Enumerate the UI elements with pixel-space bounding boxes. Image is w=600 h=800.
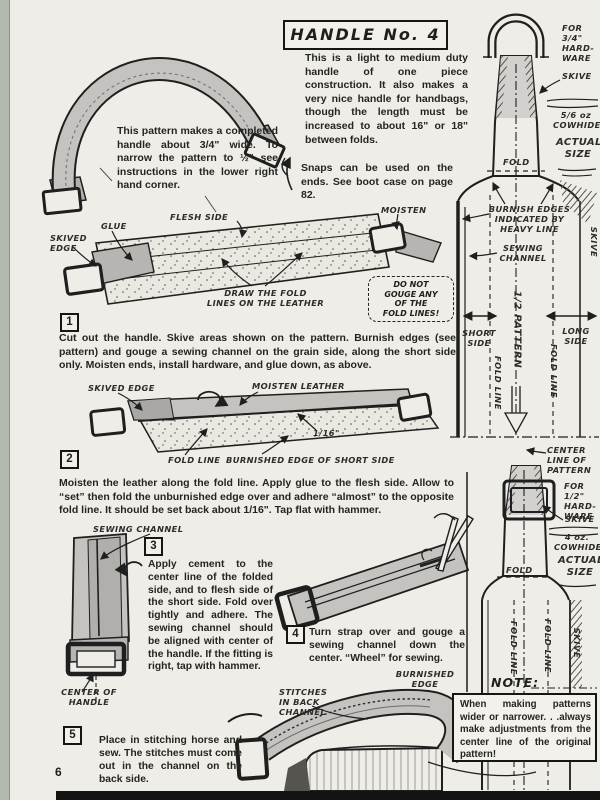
note-label: NOTE:: [491, 675, 539, 690]
label-stitches-back-channel: STITCHES IN BACK CHANNEL: [279, 687, 339, 717]
label-hardware-top: FOR 3/4" HARD- WARE: [562, 23, 600, 63]
label-fold-line-right-top: FOLD LINE: [549, 321, 559, 421]
label-fold-line-left-top: FOLD LINE: [493, 333, 503, 433]
label-skive-edge-top: SKIVE: [589, 192, 599, 292]
label-skived-edge-2: SKIVED EDGE: [88, 383, 155, 393]
label-burnished-edge-4: BURNISHED EDGE: [394, 669, 456, 689]
label-fold-top: FOLD: [503, 157, 530, 167]
note-text: When making patterns wider or narrower. …: [460, 699, 591, 762]
step-4-marker: 4: [286, 625, 305, 644]
step-5-marker: 5: [63, 726, 82, 745]
label-skive-bottom: SKIVE: [565, 514, 595, 524]
label-leather-top: 5/6 oz COWHIDE: [553, 110, 599, 130]
label-center-of-handle: CENTER OF HANDLE: [50, 687, 128, 707]
label-long-side: LONG SIDE: [558, 326, 594, 346]
label-moisten: MOISTEN: [381, 205, 426, 215]
label-flesh-side: FLESH SIDE: [170, 212, 228, 222]
warning-box: DO NOT GOUGE ANY OF THE FOLD LINES!: [368, 276, 454, 322]
page-title: HANDLE No. 4: [290, 25, 440, 44]
label-burnished-edge-short: BURNISHED EDGE OF SHORT SIDE: [226, 455, 395, 465]
pattern-top-drawing: [450, 18, 599, 453]
step-4-text: Turn strap over and gouge a sewing chann…: [309, 626, 465, 665]
label-short-side: SHORT SIDE: [461, 328, 497, 348]
label-actual-size-top: ACTUAL SIZE: [556, 137, 600, 161]
scan-edge-bottom: [56, 791, 600, 800]
step-1-text: Cut out the handle. Skive areas shown on…: [59, 332, 456, 373]
label-half-pattern: 1/2 PATTERN: [512, 280, 523, 380]
handle-width-note: This pattern makes a completed handle ab…: [117, 125, 278, 193]
step-3-marker: 3: [144, 537, 163, 556]
label-fold-bottom: FOLD: [506, 565, 533, 575]
step-2-text: Moisten the leather along the fold line.…: [59, 477, 454, 518]
label-center-line: CENTER LINE OF PATTERN: [547, 445, 591, 475]
step-3-text: Apply cement to the center line of the f…: [148, 559, 273, 674]
label-skive-top: SKIVE: [562, 71, 592, 81]
step-2-marker: 2: [60, 450, 79, 469]
note-box: When making patterns wider or narrower. …: [452, 693, 597, 762]
scan-edge-left: [0, 0, 10, 800]
step-5-text: Place in stitching horse and sew. The st…: [99, 734, 242, 786]
intro-paragraph: This is a light to medium duty handle of…: [305, 52, 468, 147]
label-fold-line: FOLD LINE: [168, 455, 220, 465]
label-skive-edge-bottom: SKIVE: [572, 593, 582, 693]
label-leather-bottom: 4 oz. COWHIDE: [554, 532, 600, 552]
label-one-sixteenth: 1/16": [313, 428, 340, 438]
cement-strap-drawing: [68, 534, 150, 700]
label-moisten-leather: MOISTEN LEATHER: [252, 381, 345, 391]
label-skived-edge-1: SKIVED EDGE: [50, 233, 87, 253]
page-number: 6: [55, 765, 62, 779]
label-draw-fold-lines: DRAW THE FOLD LINES ON THE LEATHER: [198, 288, 333, 308]
label-actual-size-bottom: ACTUAL SIZE: [558, 555, 600, 579]
fold-strap-drawing: [91, 389, 438, 455]
title-box: HANDLE No. 4: [283, 20, 448, 50]
label-burnish-edges: BURNISH EDGES INDICATED BY HEAVY LINE: [487, 204, 572, 234]
step-1-marker: 1: [60, 313, 79, 332]
snaps-note: Snaps can be used on the ends. See boot …: [301, 162, 453, 203]
label-glue: GLUE: [101, 221, 127, 231]
label-sewing-channel-3: SEWING CHANNEL: [93, 524, 183, 534]
label-sewing-channel-pattern: SEWING CHANNEL: [497, 243, 549, 263]
label-fold-line-right-bottom: FOLD LINE: [543, 596, 553, 696]
scanned-page: HANDLE No. 4 This is a light to medium d…: [0, 0, 600, 800]
